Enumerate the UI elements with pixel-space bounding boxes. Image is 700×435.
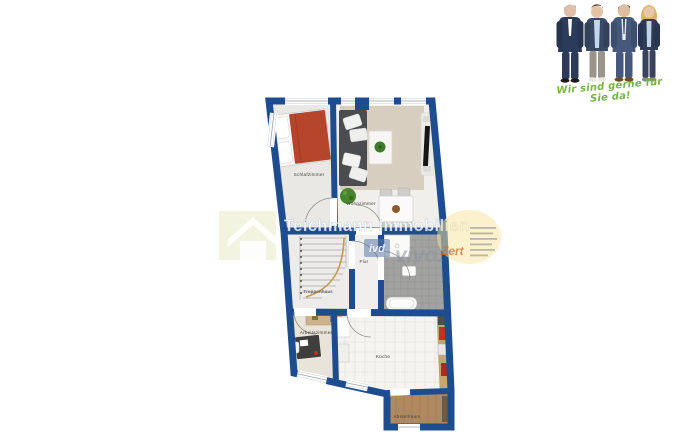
window: [401, 97, 426, 105]
watermark-house-logo: [219, 211, 278, 260]
person-2: [585, 4, 610, 81]
desk-papers: [300, 340, 309, 347]
room-label-flur: Flur: [360, 259, 369, 264]
room-label-schlafzimmer: Schlafzimmer: [294, 172, 325, 177]
bed: [271, 109, 331, 167]
kitchen-unit: [337, 344, 349, 362]
room-label-wohnzimmer: Wohnzimmer: [346, 201, 376, 206]
team-photo: [557, 4, 661, 82]
bowl: [392, 205, 400, 213]
kitchen-sink: [438, 344, 446, 355]
watermark-brand-text: vivo.: [395, 244, 443, 267]
pillow: [277, 141, 292, 163]
room-label-abstellraum: Abstellraum: [393, 414, 420, 419]
page: Schlafzimmer Wohnzimmer Flur Treppenhaus…: [0, 0, 700, 435]
room-label-arbeitszimmer: Arbeitszimmer: [300, 330, 333, 335]
room-floor-treppenhaus: [286, 233, 352, 310]
person-1: [557, 4, 584, 82]
wall-pier: [355, 101, 369, 110]
room-label-kueche: Küche: [376, 354, 390, 359]
room-label-treppenhaus: Treppenhaus: [303, 289, 333, 294]
window: [285, 97, 328, 105]
interior-wall: [334, 312, 336, 383]
ivd-badge-label: ivd: [369, 243, 385, 255]
person-3: [611, 4, 637, 81]
zert-label: Zert: [440, 244, 465, 258]
window: [369, 97, 394, 105]
window: [341, 97, 355, 105]
person-4: [638, 5, 660, 82]
zert-stamp: Zert: [437, 210, 501, 264]
window: [398, 424, 420, 431]
floor-plan-image: Schlafzimmer Wohnzimmer Flur Treppenhaus…: [0, 0, 700, 435]
